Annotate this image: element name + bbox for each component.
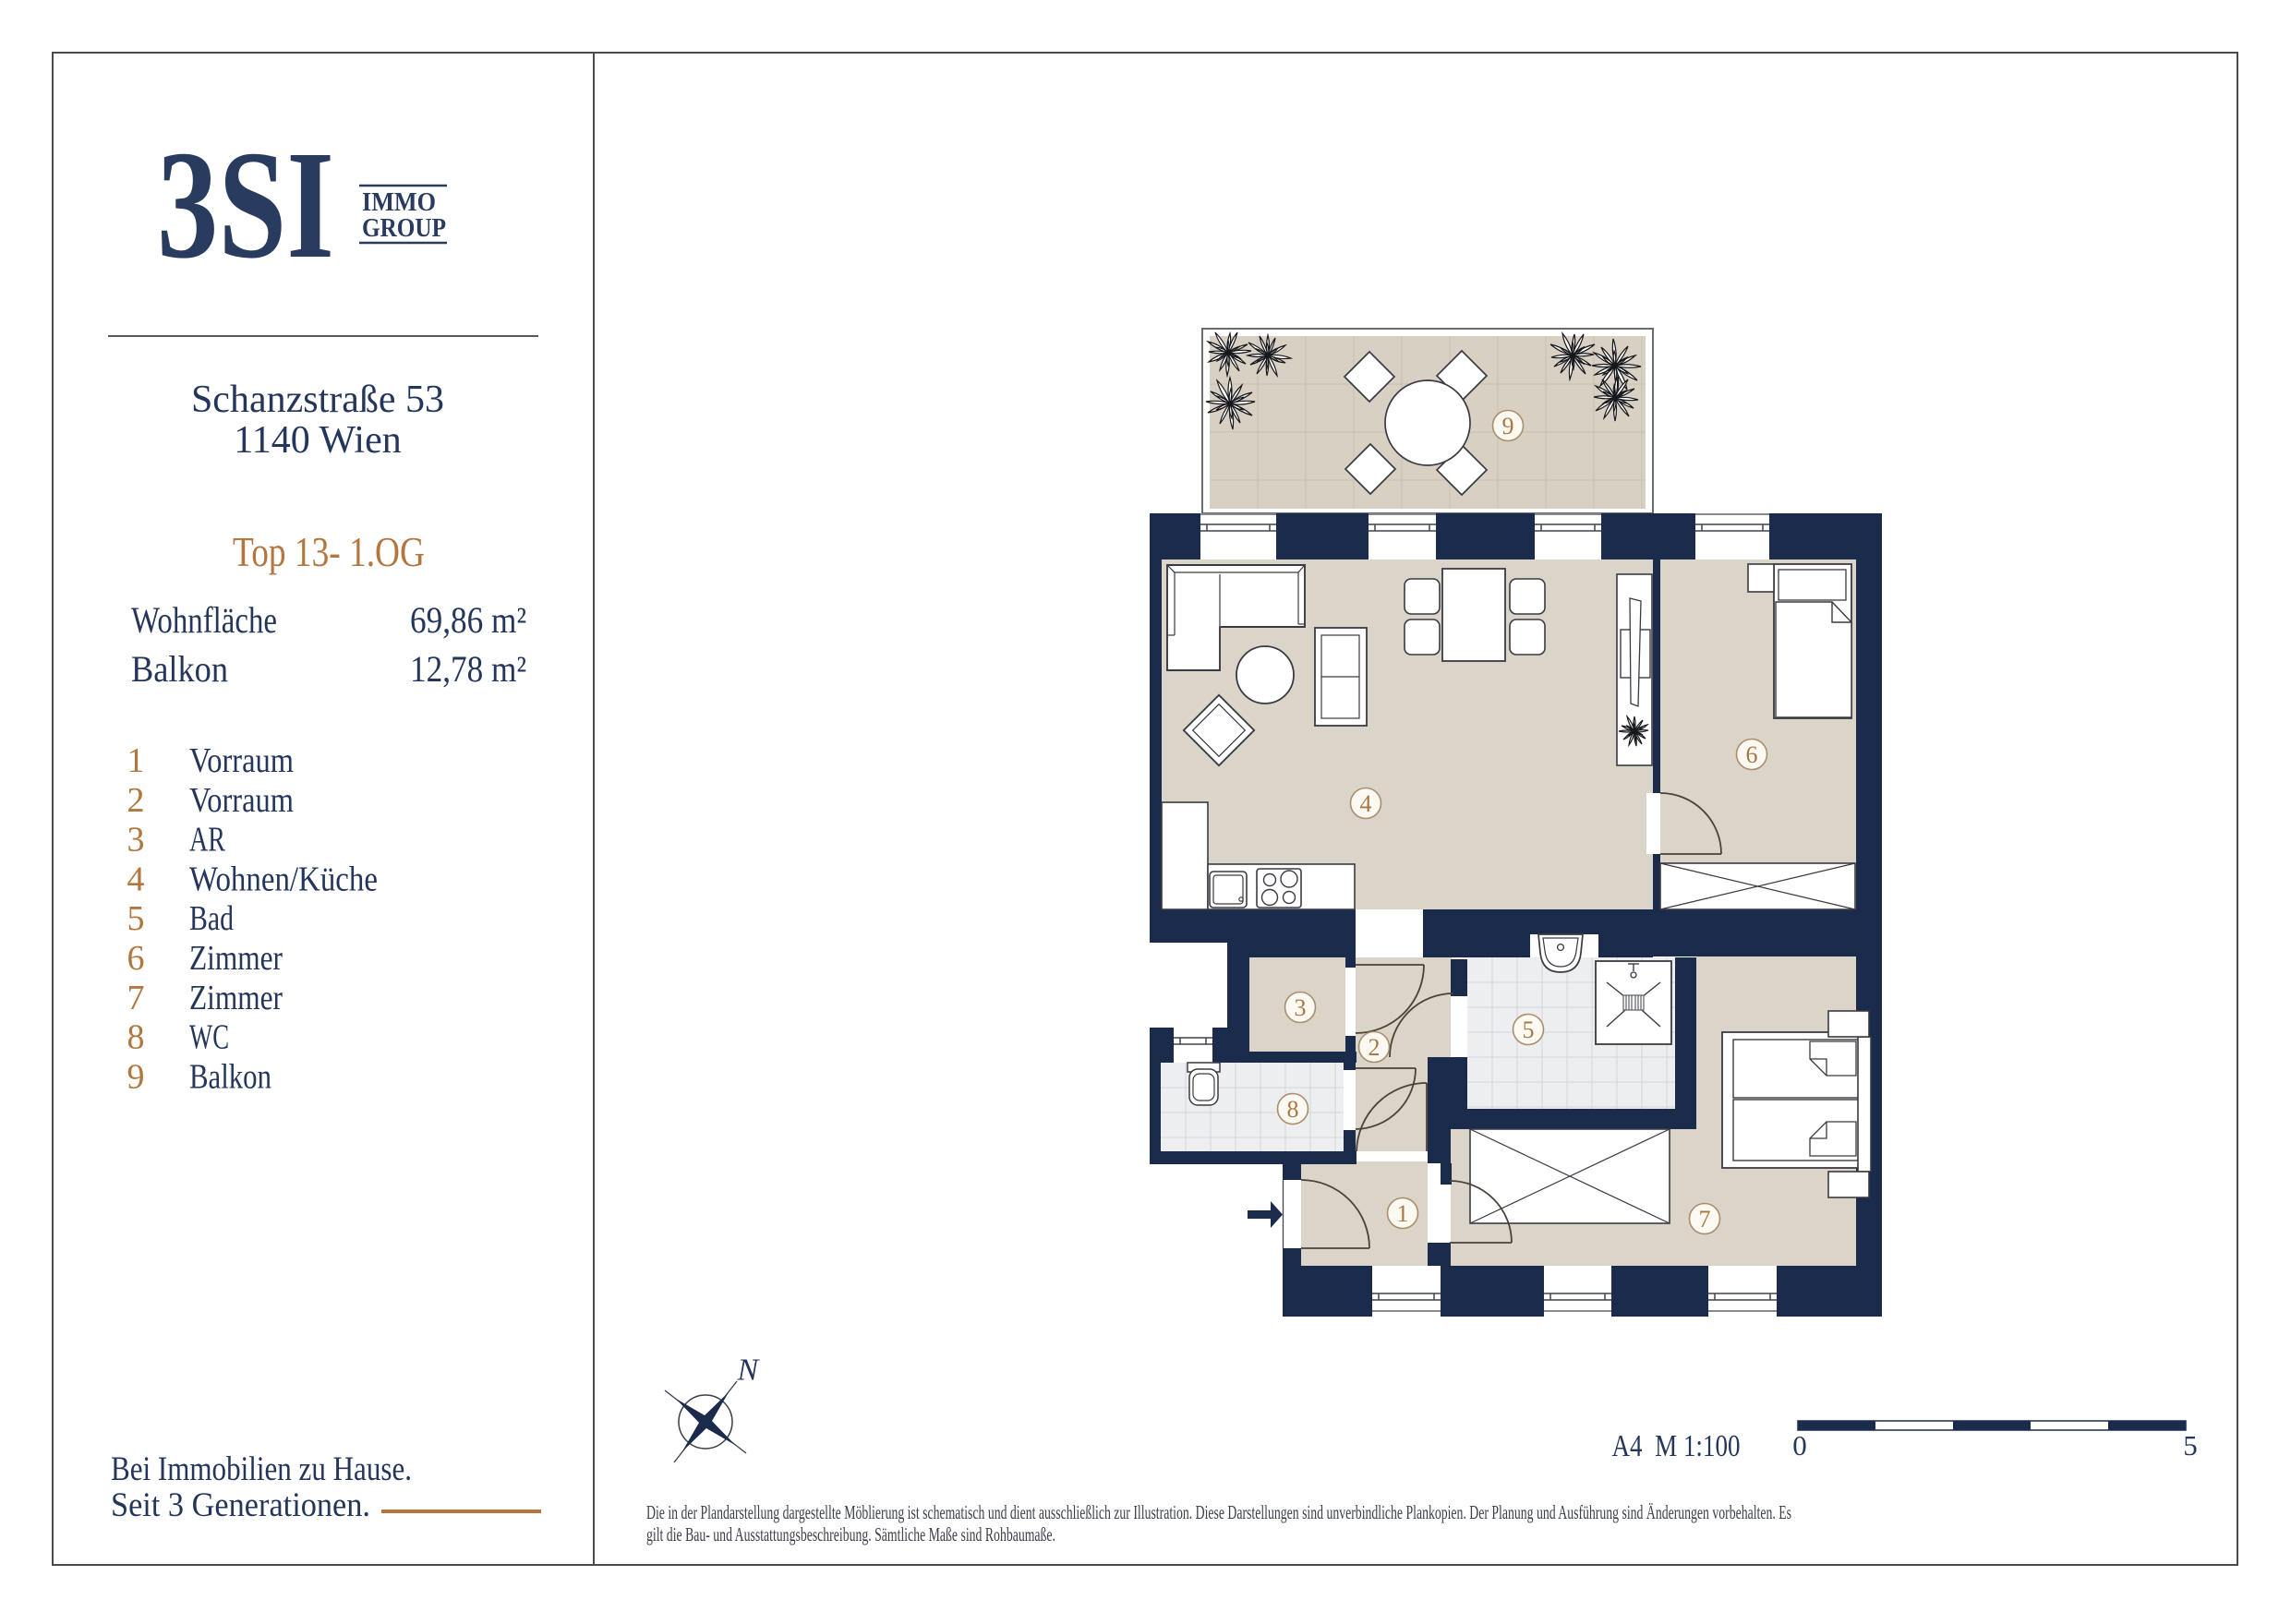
svg-text:Zimmer: Zimmer <box>189 979 283 1017</box>
svg-text:8: 8 <box>1287 1096 1299 1123</box>
svg-text:0: 0 <box>1792 1429 1807 1462</box>
svg-text:N: N <box>737 1353 761 1387</box>
svg-text:7: 7 <box>1699 1206 1711 1233</box>
svg-text:Seit 3 Generationen.: Seit 3 Generationen. <box>111 1486 370 1524</box>
svg-text:4: 4 <box>127 860 145 898</box>
svg-text:5: 5 <box>127 899 145 938</box>
svg-text:2: 2 <box>1369 1034 1381 1061</box>
svg-text:WC: WC <box>189 1018 229 1057</box>
svg-text:IMMO: IMMO <box>362 188 436 217</box>
svg-text:2: 2 <box>127 781 145 820</box>
svg-text:8: 8 <box>127 1018 145 1057</box>
svg-text:Bei Immobilien zu Hause.: Bei Immobilien zu Hause. <box>111 1450 412 1488</box>
svg-text:Die in der Plandarstellung dar: Die in der Plandarstellung dargestellte … <box>646 1501 1791 1523</box>
svg-text:Zimmer: Zimmer <box>189 939 283 978</box>
svg-text:6: 6 <box>1746 741 1758 768</box>
svg-text:Vorraum: Vorraum <box>189 741 294 780</box>
svg-text:3: 3 <box>127 821 145 860</box>
svg-text:9: 9 <box>1502 413 1514 439</box>
svg-text:gilt die Bau- und Ausstattungs: gilt die Bau- und Ausstattungsbeschreibu… <box>646 1523 1055 1546</box>
svg-text:AR: AR <box>189 821 225 860</box>
svg-text:7: 7 <box>127 979 145 1017</box>
svg-text:5: 5 <box>1523 1017 1535 1043</box>
svg-text:A4 M 1:100: A4 M 1:100 <box>1612 1429 1741 1463</box>
svg-text:69,86 m²: 69,86 m² <box>410 599 526 641</box>
svg-text:Schanzstraße 53: Schanzstraße 53 <box>191 379 444 421</box>
svg-text:9: 9 <box>127 1057 145 1096</box>
svg-text:GROUP: GROUP <box>362 214 446 243</box>
svg-text:3SI: 3SI <box>157 119 334 291</box>
svg-text:Vorraum: Vorraum <box>189 781 294 820</box>
svg-text:Wohnen/Küche: Wohnen/Küche <box>189 860 378 898</box>
svg-text:1140 Wien: 1140 Wien <box>234 419 401 462</box>
svg-text:6: 6 <box>127 939 145 978</box>
svg-text:Top 13- 1.OG: Top 13- 1.OG <box>233 528 425 575</box>
svg-text:1: 1 <box>127 741 145 780</box>
svg-text:4: 4 <box>1360 790 1372 817</box>
svg-text:Balkon: Balkon <box>131 648 228 690</box>
svg-text:Balkon: Balkon <box>189 1057 271 1096</box>
svg-text:3: 3 <box>1295 994 1307 1021</box>
svg-text:Bad: Bad <box>189 899 234 938</box>
svg-text:Wohnfläche: Wohnfläche <box>131 599 277 641</box>
svg-text:1: 1 <box>1397 1200 1409 1227</box>
svg-text:12,78 m²: 12,78 m² <box>410 648 526 690</box>
svg-text:5: 5 <box>2183 1429 2198 1462</box>
